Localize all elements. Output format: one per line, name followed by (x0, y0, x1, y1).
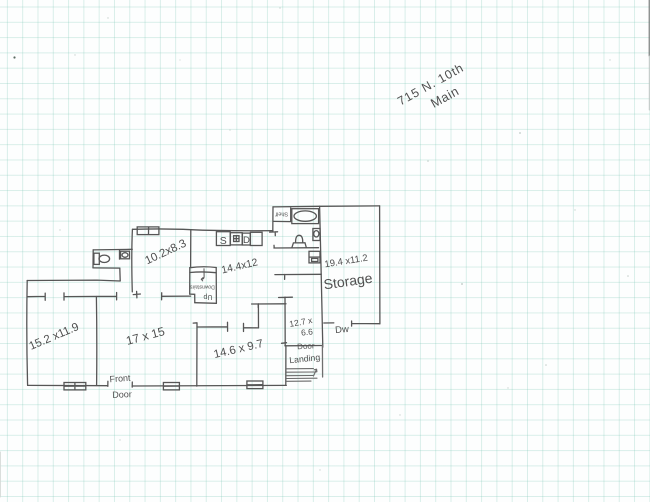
svg-text:Door: Door (297, 341, 315, 351)
svg-text:19.4 x11.2: 19.4 x11.2 (324, 253, 369, 271)
svg-text:Shelf: Shelf (275, 210, 288, 216)
svg-text:6.6: 6.6 (300, 326, 313, 337)
svg-text:Landing: Landing (289, 352, 321, 365)
svg-text:Up: Up (203, 293, 212, 300)
svg-text:Front: Front (109, 373, 131, 384)
svg-text:S: S (220, 235, 227, 247)
svg-text:14.6 x 9.7: 14.6 x 9.7 (213, 338, 265, 361)
svg-text:Downstairs: Downstairs (190, 283, 215, 289)
svg-text:Dw: Dw (335, 324, 350, 336)
svg-text:14.4x12: 14.4x12 (220, 257, 259, 276)
svg-text:D: D (243, 235, 250, 246)
svg-text:10.2x8.3: 10.2x8.3 (143, 238, 188, 268)
svg-text:Door: Door (112, 389, 132, 400)
svg-text:Storage: Storage (323, 270, 374, 293)
svg-text:15.2 x11.9: 15.2 x11.9 (28, 321, 81, 353)
svg-text:17 x 15: 17 x 15 (125, 324, 167, 348)
